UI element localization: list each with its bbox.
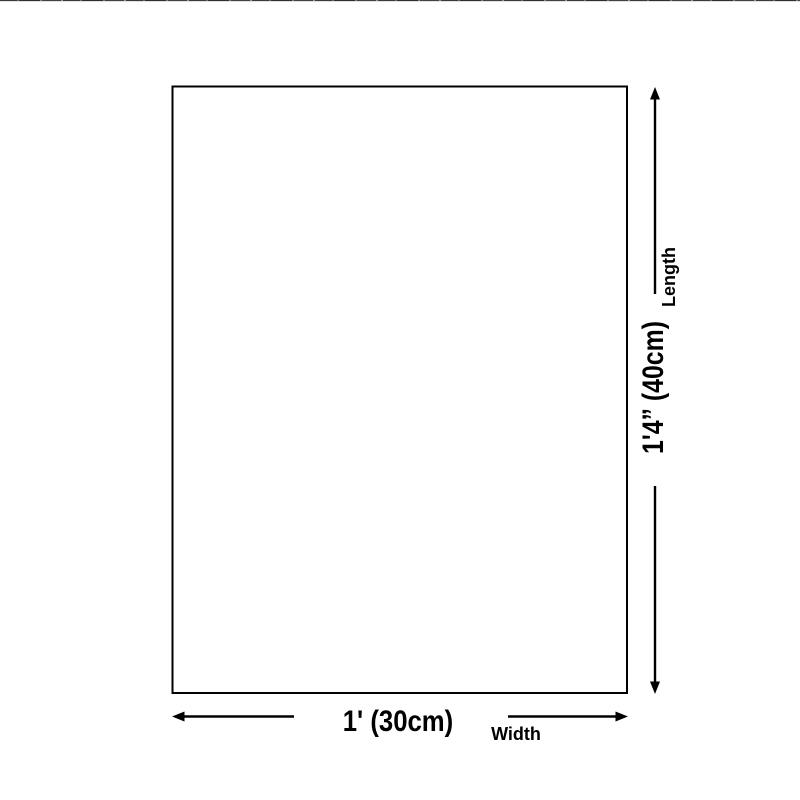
svg-text:Length: Length [659, 247, 679, 307]
svg-text:1' (30cm): 1' (30cm) [343, 705, 454, 738]
svg-text:Width: Width [491, 724, 541, 744]
svg-text:1'4” (40cm): 1'4” (40cm) [637, 321, 670, 454]
